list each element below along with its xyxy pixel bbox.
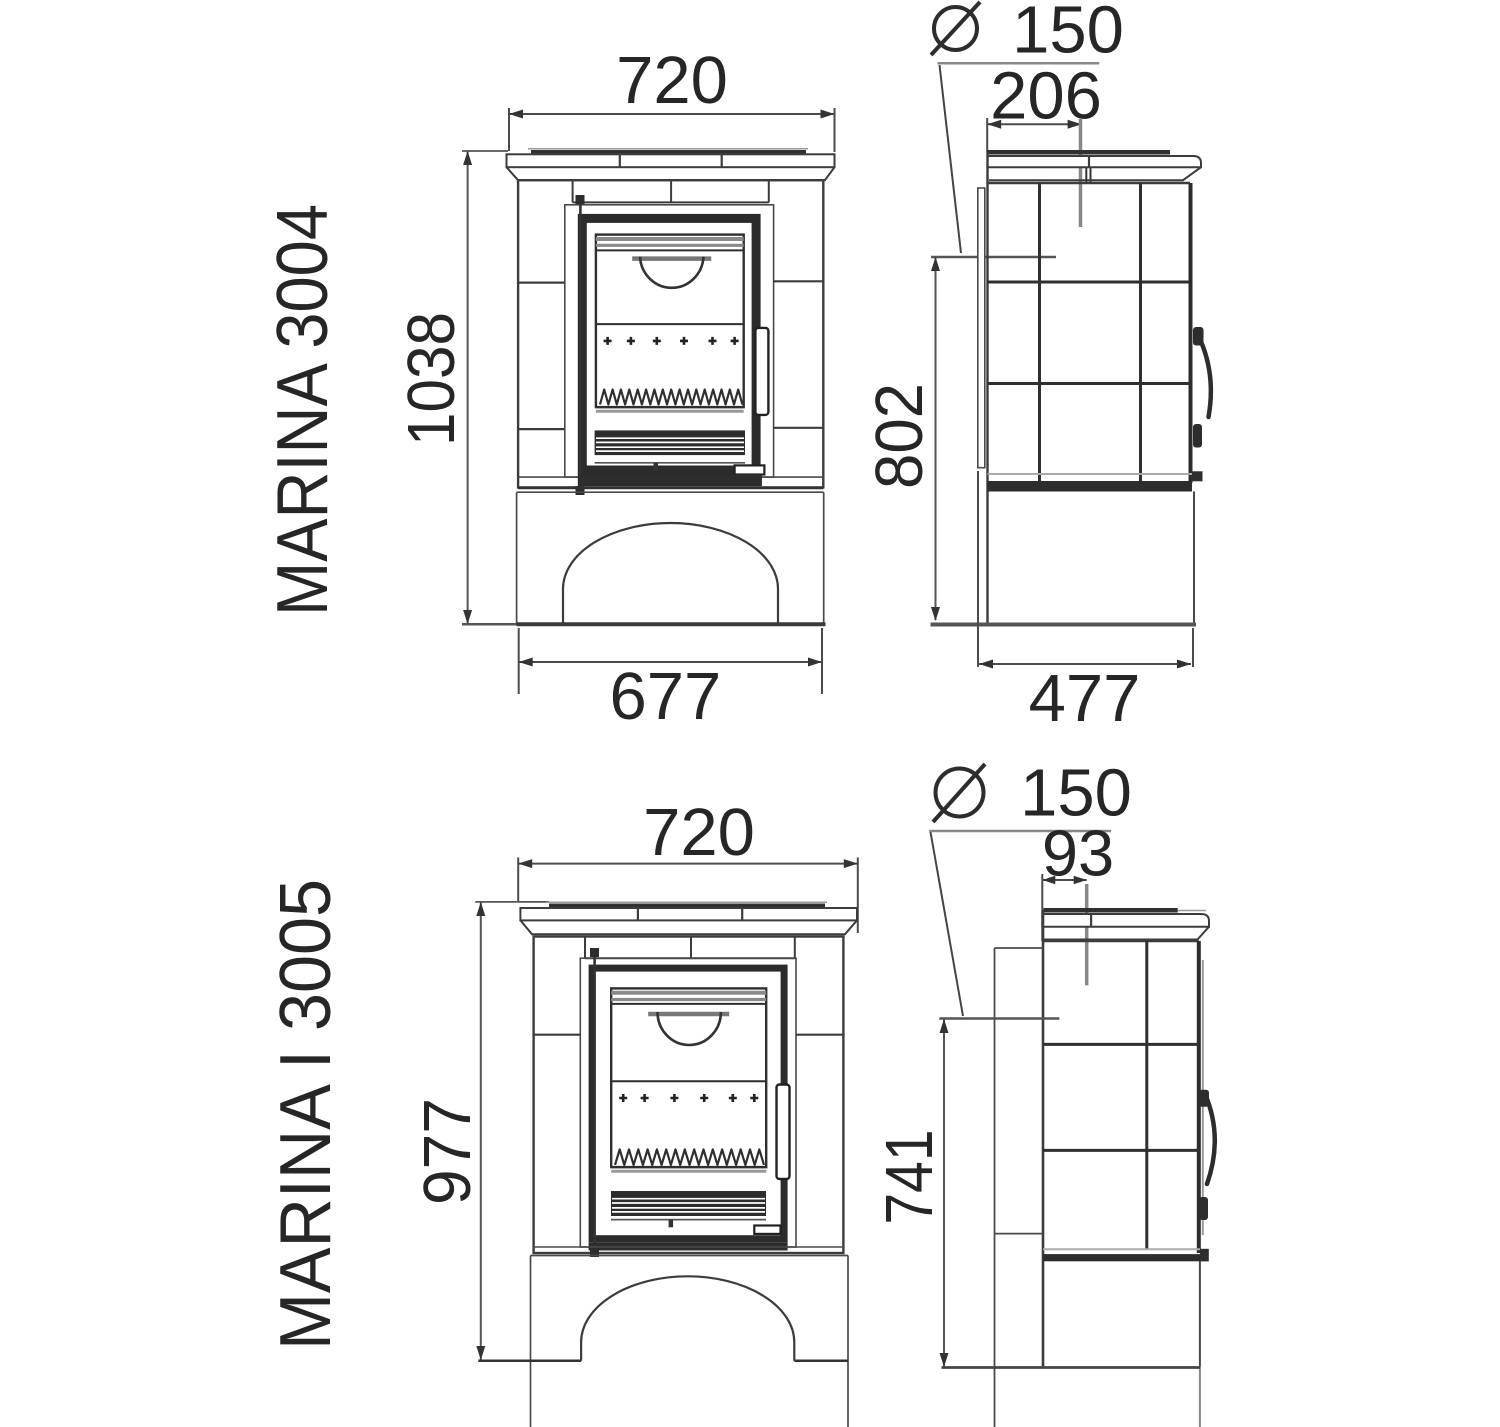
svg-text:MARINA I 3005: MARINA I 3005 bbox=[266, 879, 346, 1350]
svg-text:802: 802 bbox=[862, 383, 937, 489]
svg-text:677: 677 bbox=[610, 659, 722, 734]
svg-text:MARINA 3004: MARINA 3004 bbox=[263, 204, 343, 616]
svg-text:150: 150 bbox=[1012, 0, 1124, 68]
svg-text:720: 720 bbox=[643, 795, 755, 870]
svg-text:720: 720 bbox=[616, 43, 728, 118]
svg-text:977: 977 bbox=[410, 1098, 485, 1205]
svg-text:206: 206 bbox=[990, 59, 1102, 134]
svg-text:1038: 1038 bbox=[394, 312, 469, 446]
svg-text:741: 741 bbox=[872, 1130, 947, 1225]
svg-text:477: 477 bbox=[1029, 661, 1141, 736]
